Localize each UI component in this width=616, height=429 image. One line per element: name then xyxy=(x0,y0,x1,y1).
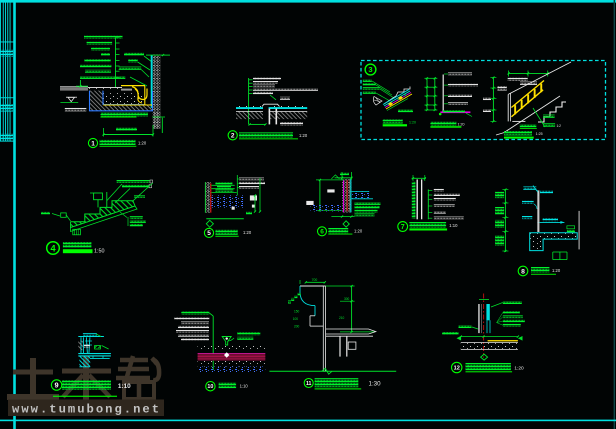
svg-text:150: 150 xyxy=(294,309,300,313)
svg-text:1:2: 1:2 xyxy=(557,124,562,128)
svg-text:1:30: 1:30 xyxy=(369,381,382,388)
svg-text:1:20: 1:20 xyxy=(514,365,524,371)
svg-text:1:20: 1:20 xyxy=(299,133,308,138)
svg-text:700: 700 xyxy=(312,278,318,282)
svg-text:1: 1 xyxy=(91,140,95,147)
svg-text:3: 3 xyxy=(368,65,372,74)
svg-text:1:10: 1:10 xyxy=(449,223,458,228)
svg-text:7: 7 xyxy=(401,224,405,231)
svg-text:1:25: 1:25 xyxy=(536,132,543,136)
svg-text:www.tumubong.net: www.tumubong.net xyxy=(12,402,161,416)
svg-text:10: 10 xyxy=(207,384,213,390)
svg-text:1:20: 1:20 xyxy=(458,122,465,126)
svg-text:300: 300 xyxy=(344,297,350,301)
svg-text:6: 6 xyxy=(320,229,324,236)
svg-text:2: 2 xyxy=(231,133,235,140)
svg-text:1:20: 1:20 xyxy=(409,120,416,124)
svg-text:1:20: 1:20 xyxy=(243,230,252,235)
svg-text:100: 100 xyxy=(293,317,299,321)
svg-text:1:20: 1:20 xyxy=(138,141,147,146)
svg-text:12: 12 xyxy=(454,366,460,372)
svg-text:1:10: 1:10 xyxy=(240,383,249,388)
svg-text:11: 11 xyxy=(306,381,312,387)
svg-text:5: 5 xyxy=(207,230,211,237)
svg-text:200: 200 xyxy=(294,325,300,329)
svg-text:1:20: 1:20 xyxy=(354,228,363,233)
svg-text:1:20: 1:20 xyxy=(552,268,561,273)
svg-text:4: 4 xyxy=(50,243,56,253)
svg-text:210: 210 xyxy=(339,316,345,320)
svg-text:1:10: 1:10 xyxy=(118,383,131,390)
svg-text:1:50: 1:50 xyxy=(94,248,105,254)
svg-text:8: 8 xyxy=(521,268,525,275)
svg-text:9: 9 xyxy=(55,381,59,390)
